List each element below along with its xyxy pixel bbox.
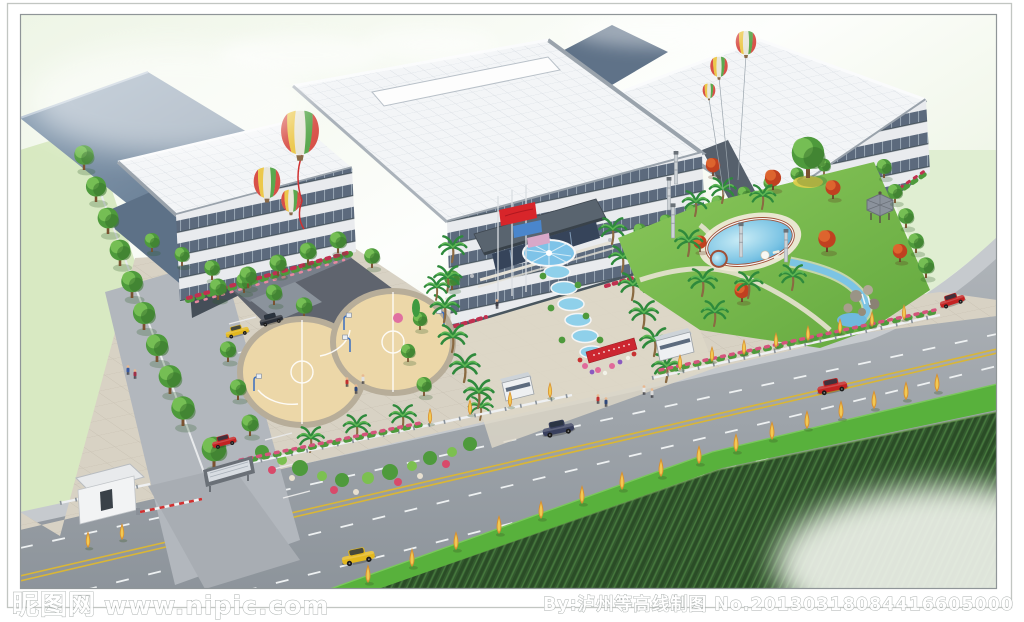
smoke-plume	[220, 35, 380, 75]
credit-text: By:泸州等高线制图	[543, 594, 707, 615]
scene	[20, 12, 1024, 622]
nipic-logo-text: 昵图网	[12, 590, 96, 621]
rendering-image: 昵图网www.nipic.com By:泸州等高线制图No.2013031808…	[0, 0, 1024, 622]
pink-flower-bed	[393, 313, 403, 323]
serial-text: No.20130318084416605000	[714, 595, 1014, 615]
watermark-left: 昵图网www.nipic.com	[12, 590, 329, 621]
big-tree	[792, 137, 827, 188]
watermark-right: By:泸州等高线制图No.20130318084416605000	[543, 594, 1014, 615]
gatehouse-door	[100, 489, 113, 511]
stone-lion	[470, 274, 474, 278]
bottle-topiary	[412, 299, 420, 317]
stone-lion	[608, 238, 612, 242]
smoke-plume	[365, 28, 495, 60]
scene-canvas: 昵图网www.nipic.com By:泸州等高线制图No.2013031808…	[0, 0, 1024, 622]
url-text: www.nipic.com	[104, 591, 329, 620]
